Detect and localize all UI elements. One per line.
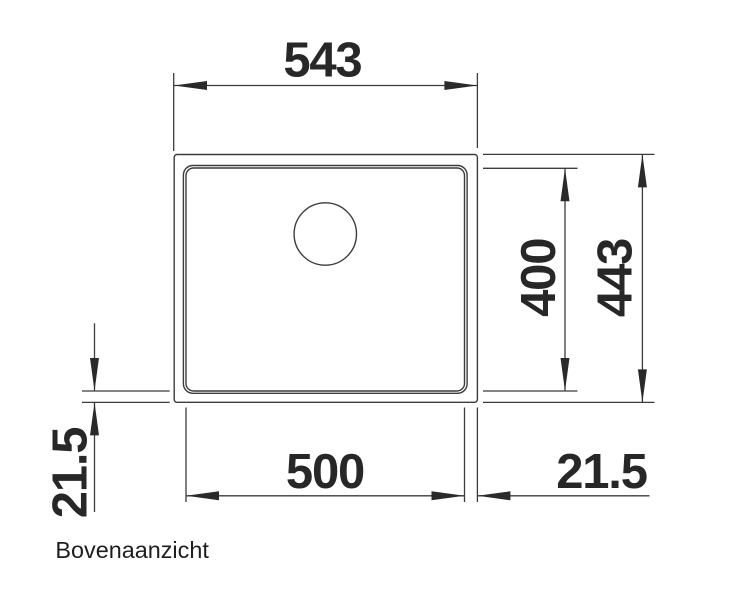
svg-text:500: 500 — [286, 445, 364, 499]
svg-text:21.5: 21.5 — [44, 428, 98, 519]
svg-text:400: 400 — [512, 239, 566, 317]
svg-text:Bovenaanzicht: Bovenaanzicht — [55, 537, 209, 563]
svg-text:543: 543 — [283, 33, 361, 87]
svg-text:21.5: 21.5 — [556, 445, 647, 499]
svg-text:443: 443 — [588, 239, 642, 317]
